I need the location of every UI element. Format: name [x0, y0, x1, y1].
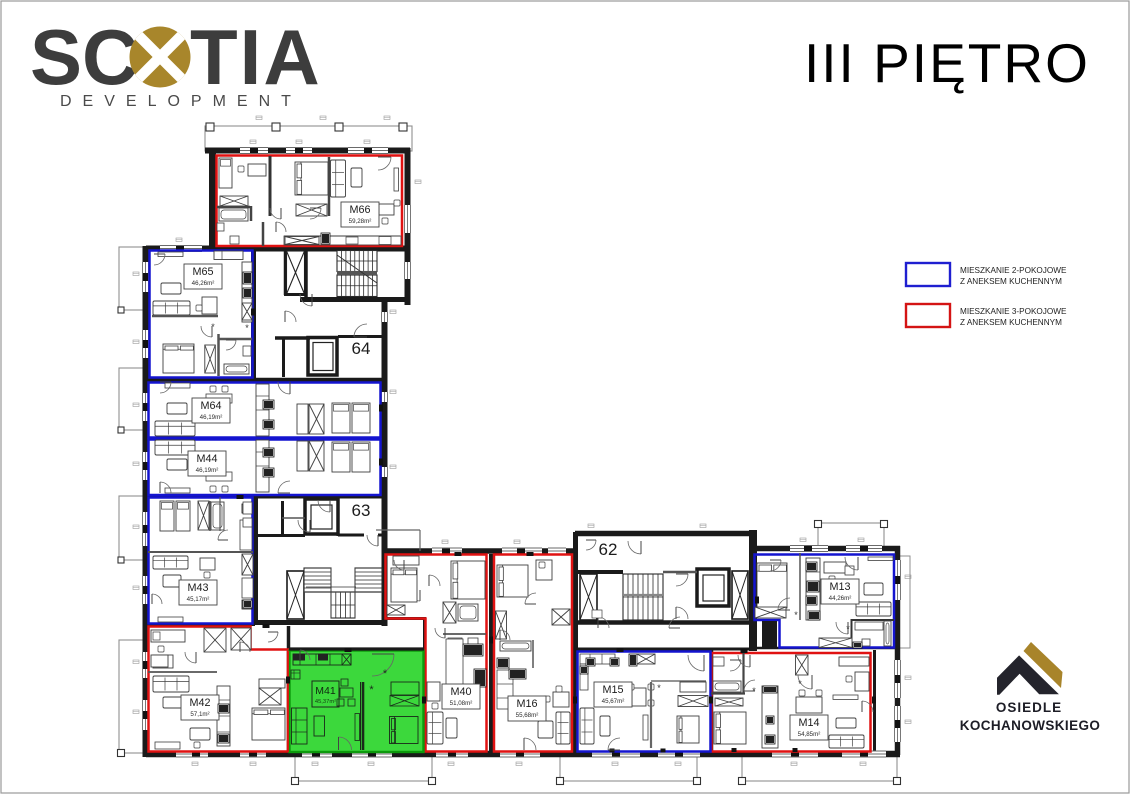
svg-text:M66: M66 — [349, 204, 370, 216]
svg-text:SC: SC — [30, 13, 138, 101]
svg-text:*: * — [794, 610, 798, 620]
svg-text:62: 62 — [599, 540, 618, 559]
svg-text:*: * — [383, 668, 388, 680]
svg-text:M40: M40 — [450, 686, 471, 698]
svg-text:M41: M41 — [315, 685, 336, 697]
svg-text:TIA: TIA — [190, 13, 322, 101]
svg-text:M13: M13 — [829, 581, 850, 593]
svg-text:54,85m²: 54,85m² — [798, 731, 821, 738]
svg-text:*: * — [245, 323, 249, 333]
svg-text:55,68m²: 55,68m² — [516, 712, 539, 719]
svg-text:M44: M44 — [196, 453, 217, 465]
svg-text:*: * — [657, 683, 661, 693]
svg-text:Z ANEKSEM KUCHENNYM: Z ANEKSEM KUCHENNYM — [960, 318, 1062, 327]
svg-text:59,28m²: 59,28m² — [349, 218, 372, 225]
svg-text:M42: M42 — [189, 697, 210, 709]
svg-text:*: * — [798, 679, 802, 689]
svg-text:63: 63 — [352, 501, 371, 520]
svg-text:DEVELOPMENT: DEVELOPMENT — [60, 93, 302, 110]
svg-text:45,37m²: 45,37m² — [315, 699, 336, 705]
svg-text:*: * — [211, 322, 215, 332]
svg-text:*: * — [369, 684, 374, 696]
svg-text:64: 64 — [352, 339, 371, 358]
svg-text:46,19m²: 46,19m² — [196, 467, 219, 474]
svg-text:OSIEDLE: OSIEDLE — [996, 700, 1062, 715]
svg-text:M43: M43 — [187, 582, 208, 594]
svg-text:44,26m²: 44,26m² — [829, 595, 852, 602]
svg-text:III PIĘTRO: III PIĘTRO — [804, 32, 1090, 94]
svg-text:MIESZKANIE 3-POKOJOWE: MIESZKANIE 3-POKOJOWE — [960, 307, 1067, 316]
svg-text:M16: M16 — [516, 698, 537, 710]
svg-text:MIESZKANIE 2-POKOJOWE: MIESZKANIE 2-POKOJOWE — [960, 266, 1067, 275]
svg-text:45,67m²: 45,67m² — [602, 698, 625, 705]
svg-text:M15: M15 — [602, 684, 623, 696]
svg-text:45,17m²: 45,17m² — [187, 596, 210, 603]
svg-text:M65: M65 — [192, 266, 213, 278]
svg-text:57,1m²: 57,1m² — [190, 711, 209, 718]
svg-text:46,26m²: 46,26m² — [192, 280, 215, 287]
svg-text:*: * — [752, 686, 756, 696]
svg-text:51,08m²: 51,08m² — [450, 700, 473, 707]
svg-text:KOCHANOWSKIEGO: KOCHANOWSKIEGO — [960, 718, 1101, 733]
svg-text:M14: M14 — [798, 717, 819, 729]
svg-text:*: * — [846, 624, 850, 634]
svg-text:Z ANEKSEM KUCHENNYM: Z ANEKSEM KUCHENNYM — [960, 277, 1062, 286]
svg-text:M64: M64 — [200, 400, 221, 412]
svg-text:46,19m²: 46,19m² — [200, 414, 223, 421]
